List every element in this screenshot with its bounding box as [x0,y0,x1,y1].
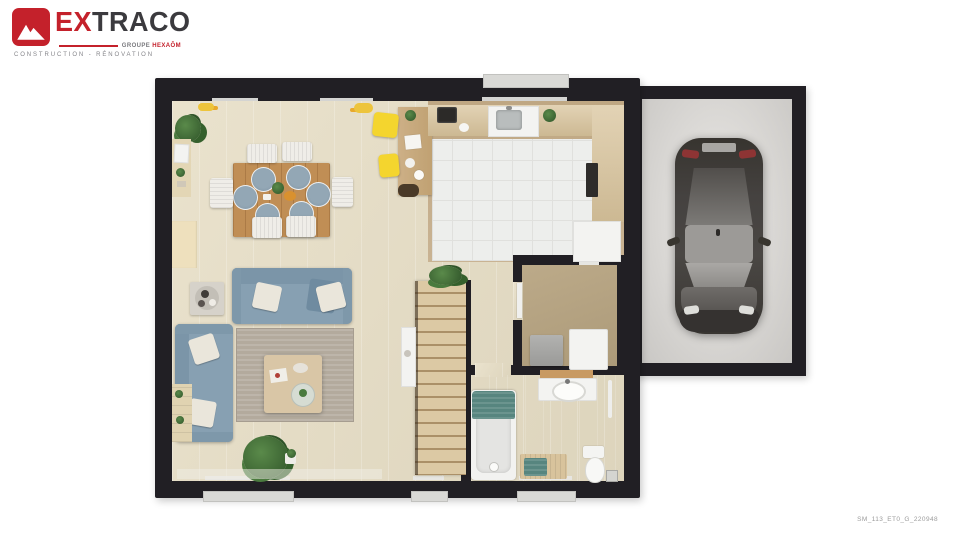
bathtub-teal-mat [472,391,515,419]
coffee-table-plate [293,363,308,373]
group-label: GROUPE HEXAÔM [122,43,181,49]
car-windshield [684,263,754,287]
table-centerpiece-plant [272,182,284,194]
floor-drain [606,470,618,482]
console-plant [176,168,185,177]
sofa-pillow [252,282,283,313]
washing-machine [530,335,563,366]
toilet-bowl [585,457,605,483]
sofa-horizontal [232,268,352,324]
utility-door-leaf [517,283,522,318]
brand-traco: TRACO [92,6,191,37]
shelf-plant [175,390,183,398]
dining-chair [332,177,353,207]
logo-tagline: CONSTRUCTION - RÉNOVATION [14,52,154,58]
extraco-logo: EXTRACO GROUPE HEXAÔM CONSTRUCTION - RÉN… [12,8,192,46]
bench-towels [524,458,547,476]
staircase [415,281,466,475]
oven [586,163,598,197]
bathroom-window-sill [517,491,576,502]
dining-plate [286,165,311,190]
yellow-stool [372,112,399,138]
car-rear-window [684,168,754,225]
sink-faucet [506,106,512,110]
yellow-stool [378,153,400,178]
dining-window-glass-1 [212,98,258,101]
console-frame-decor [174,144,190,164]
logo-red-line [59,45,118,48]
floor-plan [155,78,815,503]
wall-decor-yellow-2 [354,103,373,113]
kitchen-plant [543,109,556,122]
stair-console [401,327,416,387]
dining-window-glass-2 [320,98,373,101]
mountain-logo-icon [12,8,50,46]
floor-plan-page: EXTRACO GROUPE HEXAÔM CONSTRUCTION - RÉN… [0,0,960,540]
sofa-pillow [188,333,221,366]
tray-cup [201,290,209,298]
dining-chair [247,144,277,163]
tray-plant [299,389,307,397]
sofa-armrest [175,324,233,334]
bathtub [471,390,516,480]
console-item [177,181,186,187]
stair-console-decor [404,350,411,357]
tray-red-item [275,373,280,378]
car-rear-trim [702,143,736,152]
sofa-armrest [232,268,241,324]
vanity-faucet [565,379,570,384]
fridge [573,221,621,262]
coffee-table [264,355,322,413]
window-light [177,469,382,479]
dining-chair [282,142,312,161]
kitchen-bowl [459,123,469,132]
wall-decor-yellow-1 [198,103,214,111]
table-napkin [263,194,271,200]
living-window-sill [203,491,294,502]
vanity-basin [552,381,586,402]
brand-name: EXTRACO [55,8,191,35]
dining-chair [252,217,282,238]
desk [398,107,432,195]
kitchen-window-glass [482,97,567,101]
table-centerpiece-bowl [284,191,296,201]
car [675,138,763,334]
sideboard-low [172,221,197,268]
brand-ex: EX [55,6,92,37]
dining-plate [233,185,258,210]
plant-dining-corner [175,115,201,142]
stair-window-glass [413,476,444,480]
desk-papers [404,134,421,150]
desk-plant [405,110,416,121]
desk-chair [398,184,419,197]
side-table [190,282,224,315]
kitchen-tile-floor [432,139,592,261]
shelf-plant [176,416,184,424]
dining-chair [210,178,233,208]
cooktop [437,107,457,123]
car-antenna [716,229,720,236]
plant-stairs [429,266,462,285]
vanity-counter [538,378,597,401]
stair-window-sill [411,491,448,502]
bathtub-drain [489,462,499,472]
dining-chair [286,216,316,237]
towel-rail [608,380,612,418]
dryer-appliance [569,329,608,370]
tray-cup [198,300,205,307]
tray-dish [209,299,216,306]
desk-plate [405,158,415,168]
plant-small [287,449,296,458]
plan-reference-code: SM_113_ET0_G_220948 [857,516,938,523]
kitchen-window-sill [483,74,569,88]
sink-basin [496,110,522,130]
vanity-shelf [540,370,593,378]
group-name: HEXAÔM [152,43,181,49]
desk-teapot [414,170,424,180]
